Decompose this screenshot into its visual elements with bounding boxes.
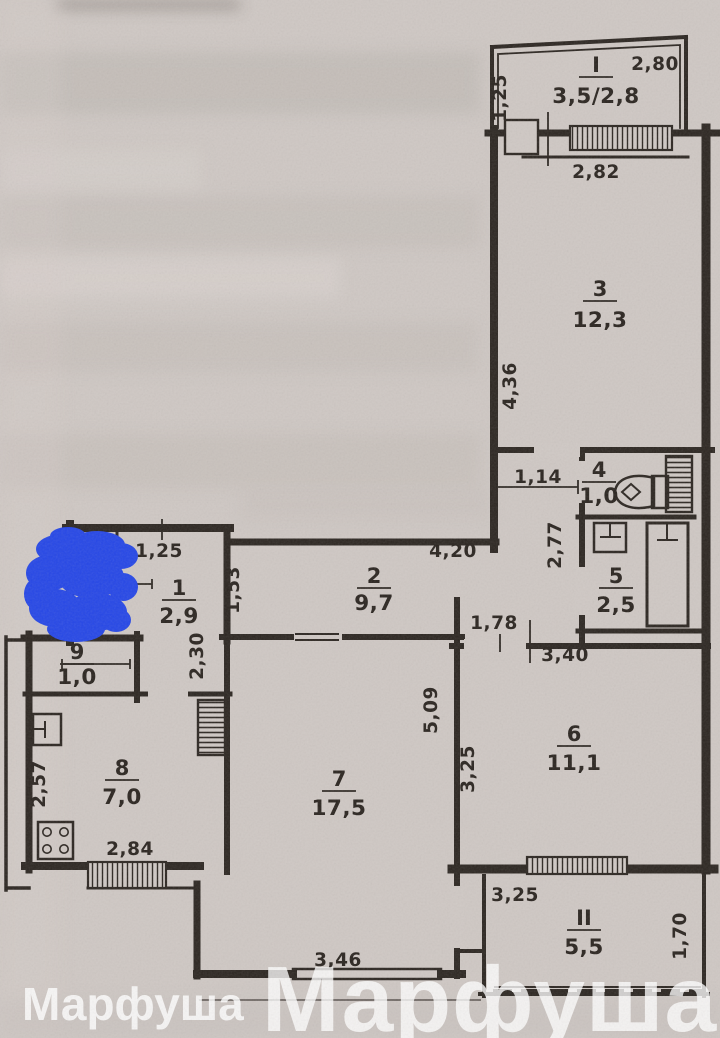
scan-grain-overlay [0,0,720,1038]
scanned-floor-plan: I3,5/2,8312,341,052,529,712,991,087,0717… [0,0,720,1038]
floor-plan-svg: I3,5/2,8312,341,052,529,712,991,087,0717… [0,0,720,1038]
